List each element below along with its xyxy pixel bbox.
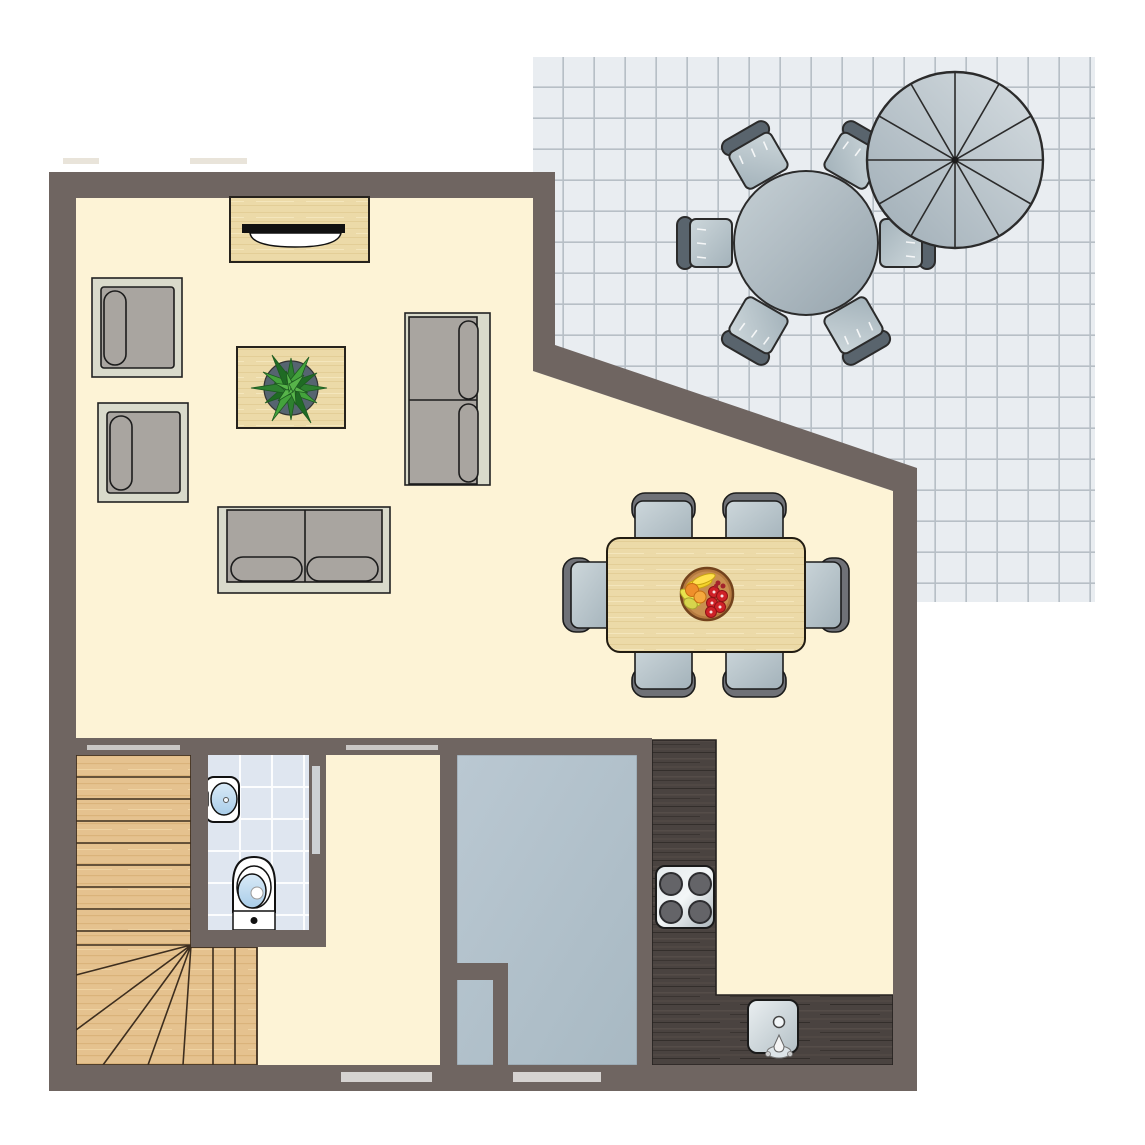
armchair: [92, 278, 182, 377]
door-opening-marker: [346, 745, 438, 750]
two-seat-sofa: [218, 507, 390, 593]
patio-chair: [677, 217, 732, 269]
floor-plan: [0, 0, 1145, 1145]
window-marker-faint: [190, 158, 247, 164]
flush-button: [251, 917, 258, 924]
toilet-icon: [233, 857, 275, 930]
window-marker-faint: [63, 158, 99, 164]
window-marker: [513, 1072, 601, 1082]
sliding-door-marker: [312, 766, 320, 854]
sideboard-with-tv: [230, 197, 369, 262]
patio-round-table: [734, 171, 878, 315]
tv-icon: [242, 224, 345, 233]
floor-plan-canvas: [0, 0, 1145, 1145]
door-opening-marker: [87, 745, 180, 750]
coffee-table-with-plant: [237, 347, 345, 428]
utility-room-floor: [457, 755, 637, 1065]
two-seat-sofa: [405, 313, 490, 485]
bathroom: [200, 755, 309, 930]
hob-icon: [656, 866, 714, 928]
parasol-icon: [867, 72, 1043, 248]
kitchen-sink-icon: [748, 1000, 798, 1058]
window-marker: [341, 1072, 432, 1082]
armchair: [98, 403, 188, 502]
